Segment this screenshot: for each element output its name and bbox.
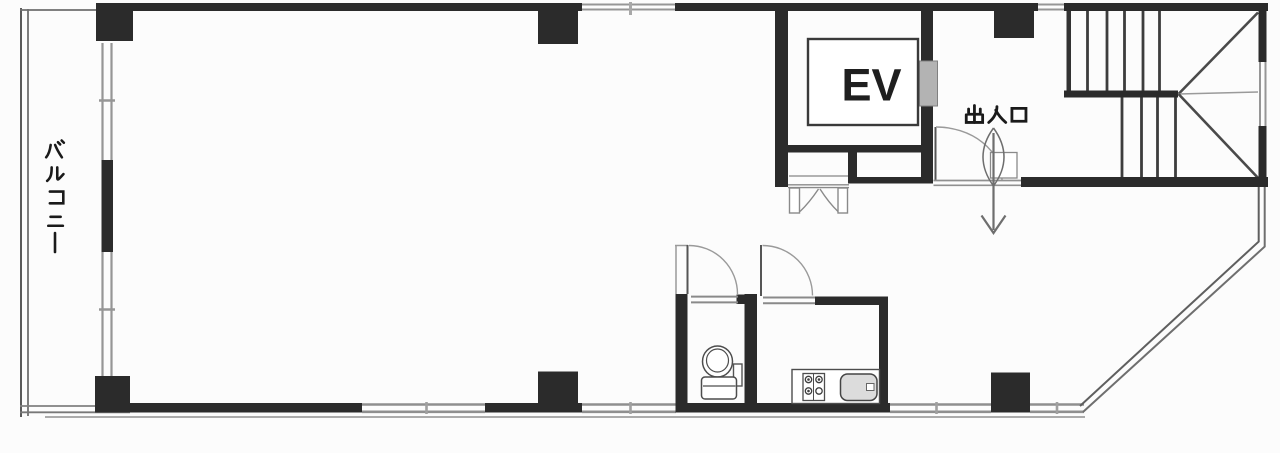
svg-text:EV: EV — [841, 60, 901, 111]
